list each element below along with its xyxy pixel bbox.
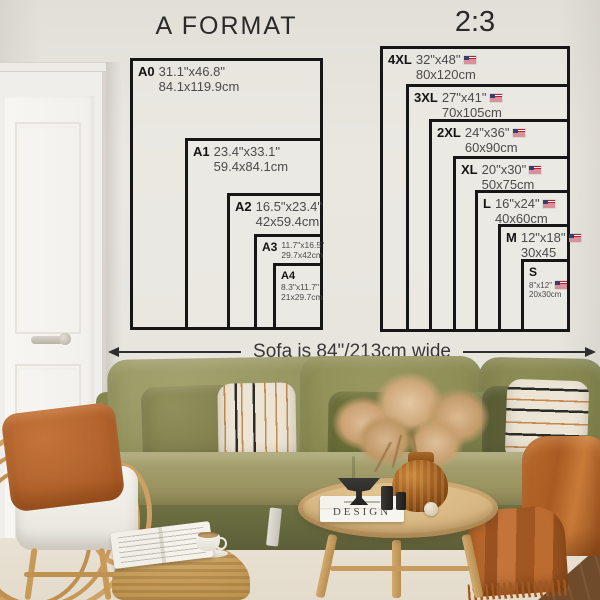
coffee-cup [196, 534, 220, 551]
flower-cluster [356, 414, 414, 466]
wooden-bead [424, 502, 438, 516]
dried-flowers [322, 370, 492, 474]
coffee-table: DESIGN [0, 0, 600, 600]
table-brace [330, 566, 470, 571]
candle-holder [381, 486, 393, 510]
poster-size-guide-image: A FORMAT 2:3 A0 31.1"x46.8"84.1x119.9cm … [0, 0, 600, 600]
candle-holder [396, 492, 406, 510]
